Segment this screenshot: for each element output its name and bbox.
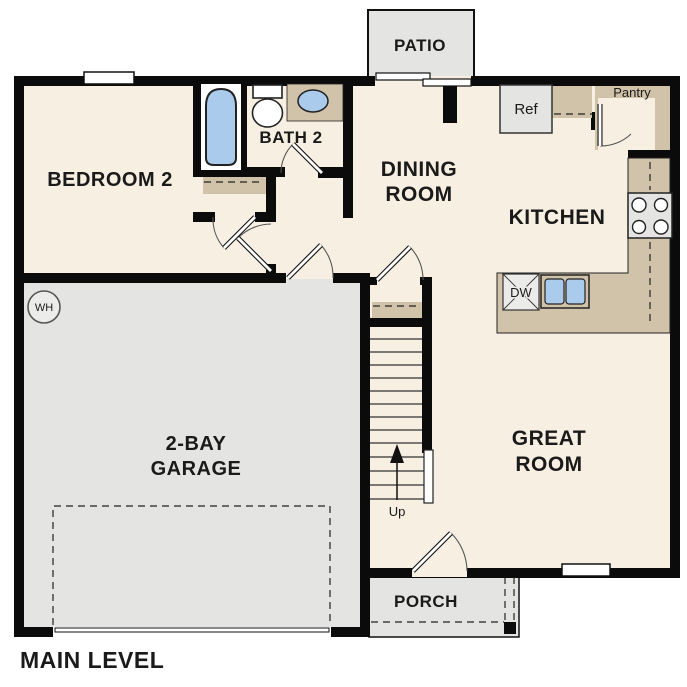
pantry-label: Pantry xyxy=(613,85,651,100)
bedroom2-label: BEDROOM 2 xyxy=(47,169,173,191)
garage-door-line xyxy=(55,628,329,632)
window xyxy=(562,564,610,576)
toilet-bowl-icon xyxy=(253,99,283,127)
water-heater-label: WH xyxy=(35,302,53,314)
great-room-label: GREAT xyxy=(512,427,586,450)
dishwasher-label: DW xyxy=(510,285,532,300)
burner-icon xyxy=(632,198,646,212)
stairs-up-label: Up xyxy=(389,504,406,519)
bath-sink-icon xyxy=(298,90,328,112)
bathtub-icon xyxy=(206,89,236,165)
closet-shelf xyxy=(372,302,422,318)
refrigerator-label: Ref xyxy=(514,101,538,118)
floor-plan-canvas: BEDROOM 2 BATH 2 DINING ROOM KITCHEN GRE… xyxy=(0,0,687,687)
garage-label: GARAGE xyxy=(151,458,242,480)
sliding-door-panel xyxy=(423,79,471,86)
great-room-label: ROOM xyxy=(515,453,582,476)
toilet-icon xyxy=(253,85,282,98)
floor-plan-page: BEDROOM 2 BATH 2 DINING ROOM KITCHEN GRE… xyxy=(0,0,687,687)
burner-icon xyxy=(654,220,668,234)
dining-room-label: ROOM xyxy=(385,183,452,206)
porch-label: PORCH xyxy=(394,592,458,611)
kitchen-label: KITCHEN xyxy=(509,206,606,229)
dining-room-label: DINING xyxy=(381,158,458,181)
burner-icon xyxy=(633,221,646,234)
sliding-door-panel xyxy=(376,73,430,80)
bath2-label: BATH 2 xyxy=(259,128,322,147)
closet-shelf xyxy=(203,177,266,194)
porch-post xyxy=(504,622,516,634)
upper-cabinet xyxy=(552,86,592,118)
page-title: MAIN LEVEL xyxy=(20,647,164,673)
pantry-floor xyxy=(598,98,655,150)
burner-icon xyxy=(655,199,668,212)
garage-label: 2-BAY xyxy=(166,433,227,455)
patio-label: PATIO xyxy=(394,36,446,55)
window xyxy=(84,72,134,84)
front-door-opening xyxy=(412,568,467,577)
stair-railing xyxy=(424,450,433,503)
